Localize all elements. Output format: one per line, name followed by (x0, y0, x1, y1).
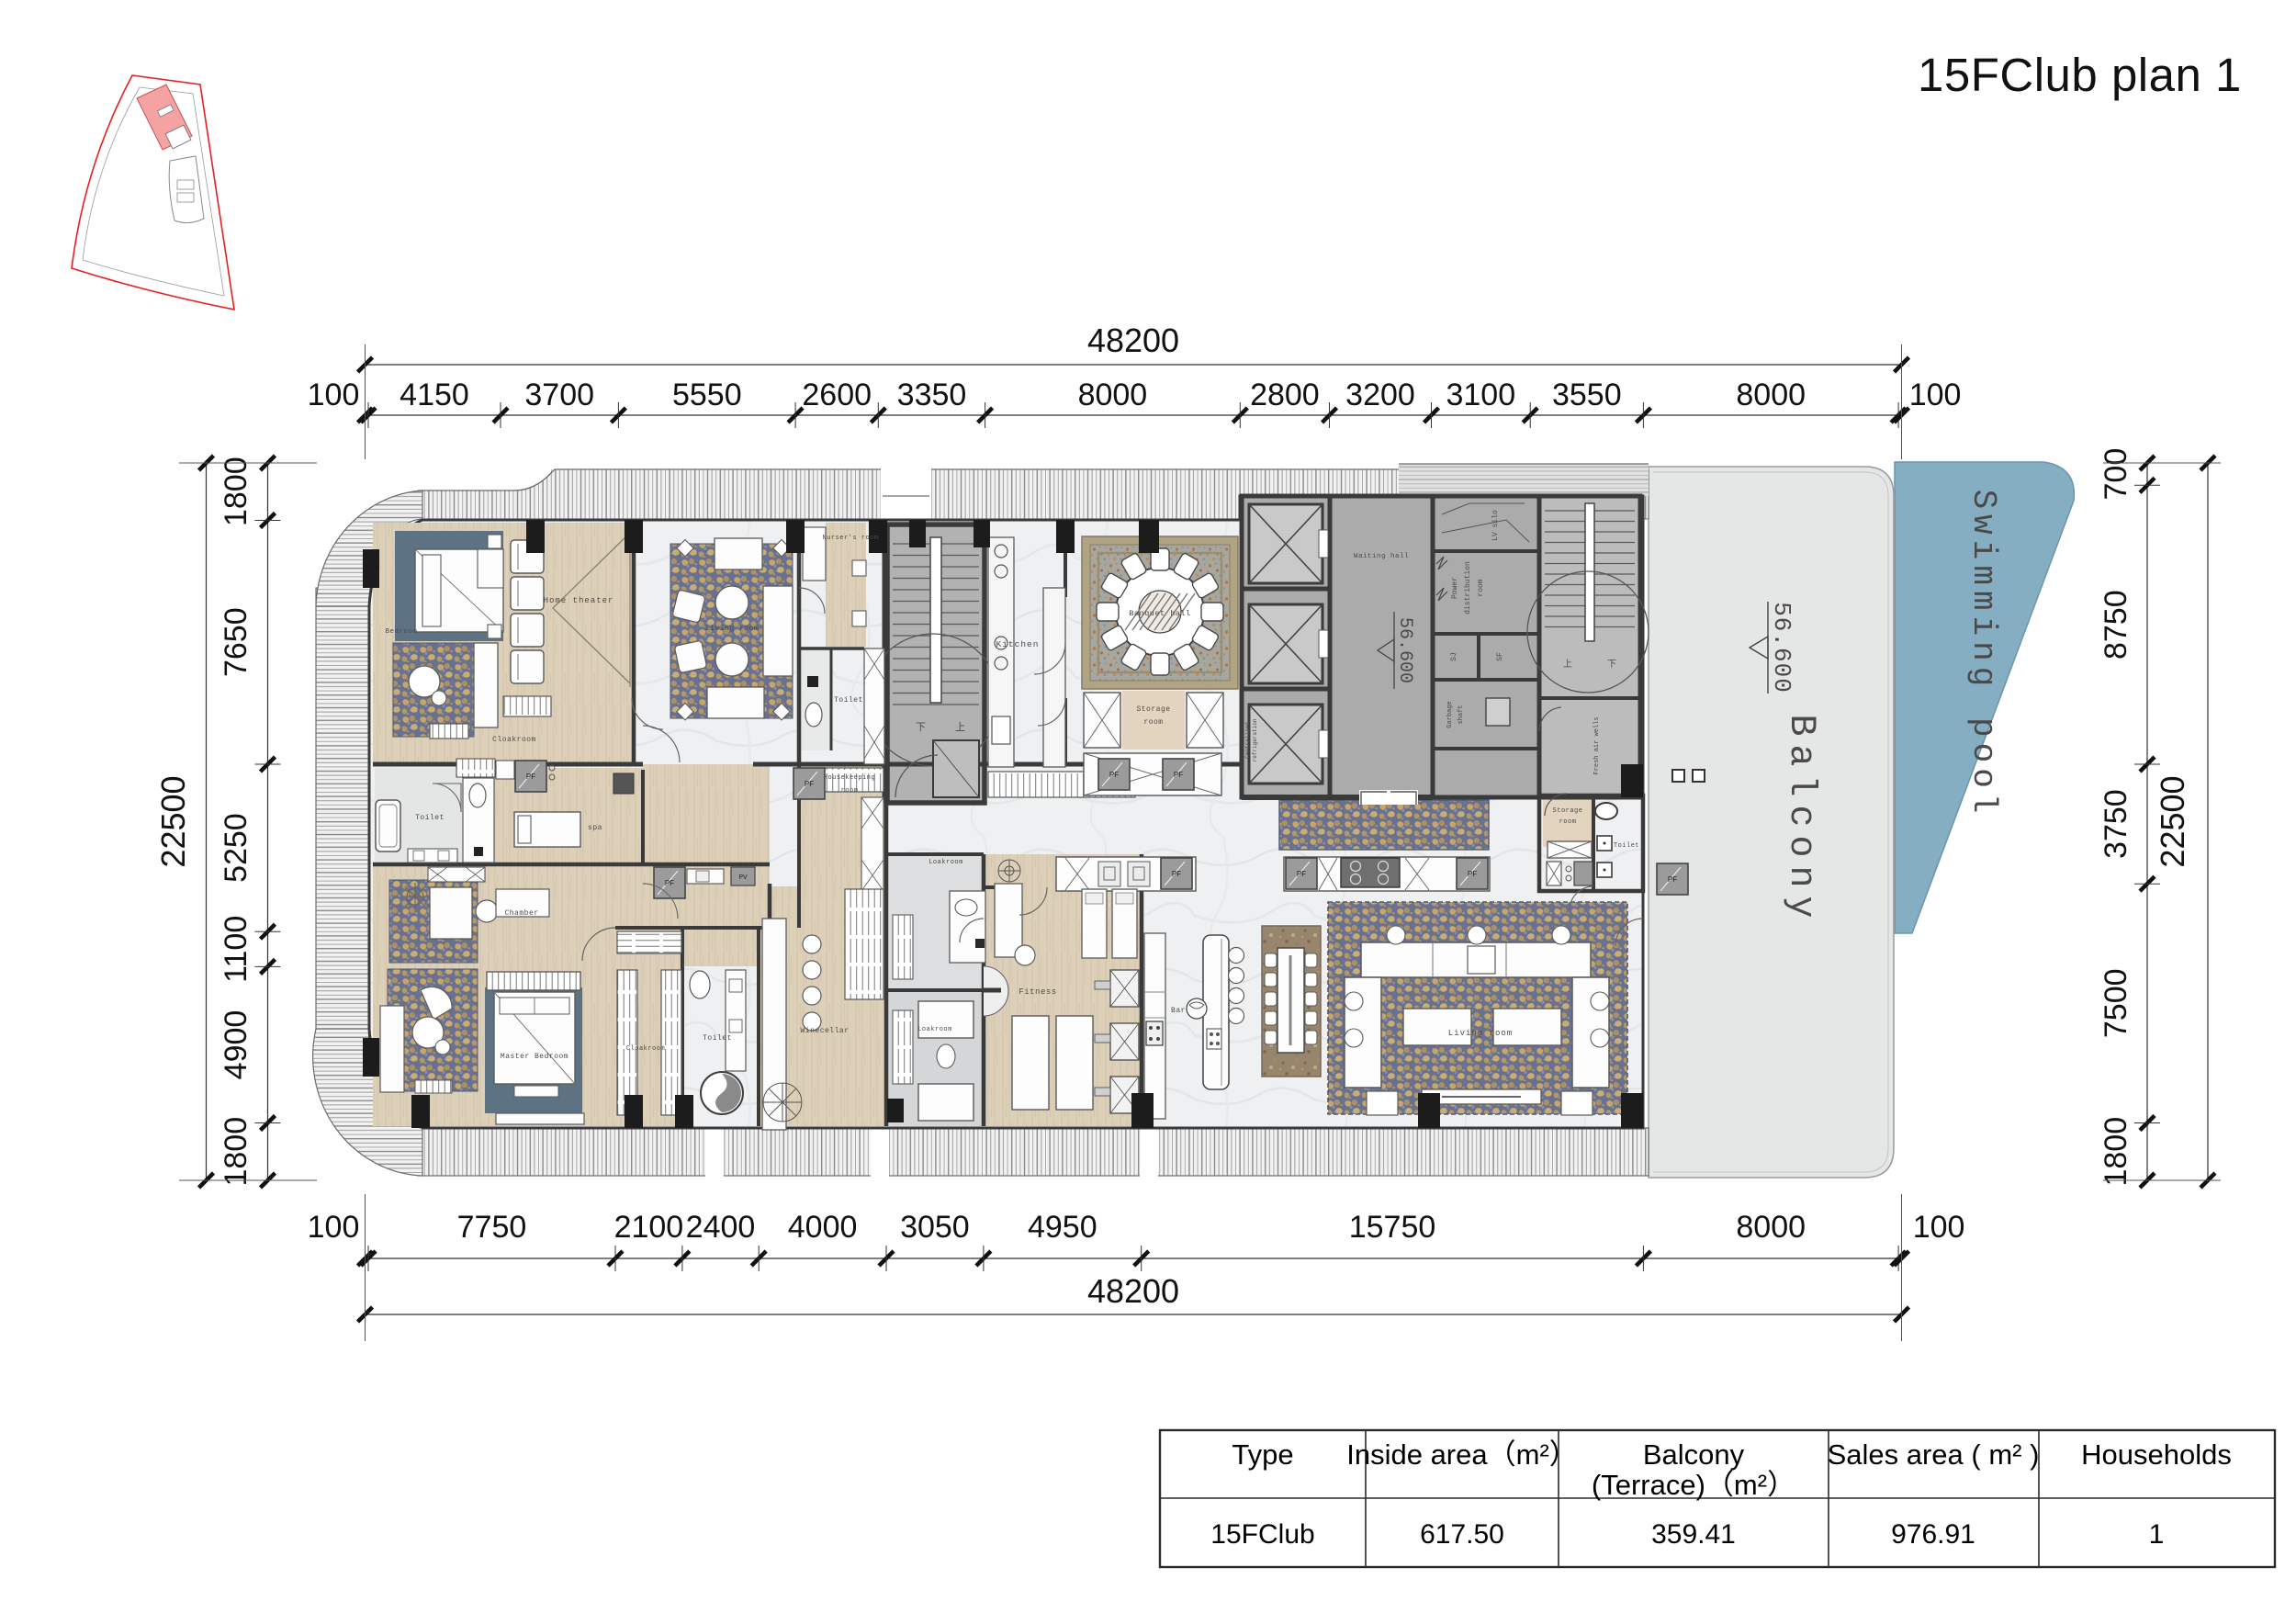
svg-text:Toilet: Toilet (415, 814, 445, 822)
svg-text:8000: 8000 (1078, 378, 1148, 412)
svg-text:(Terrace)（m²）: (Terrace)（m²） (1592, 1469, 1795, 1501)
svg-text:4000: 4000 (788, 1210, 858, 1245)
svg-text:下: 下 (916, 722, 926, 734)
svg-text:Power: Power (1451, 577, 1459, 599)
svg-text:976.91: 976.91 (1891, 1519, 1975, 1550)
svg-text:4150: 4150 (400, 378, 469, 412)
svg-text:5550: 5550 (672, 378, 742, 412)
svg-text:room: room (1143, 718, 1163, 727)
svg-text:Banquet hall: Banquet hall (1129, 609, 1190, 618)
svg-text:refrigeration: refrigeration (1252, 718, 1258, 761)
svg-text:Master Bedroom: Master Bedroom (501, 1053, 568, 1061)
svg-text:8000: 8000 (1736, 1210, 1806, 1245)
svg-text:PV: PV (738, 874, 748, 881)
svg-text:room: room (1477, 579, 1485, 596)
svg-text:48200: 48200 (1087, 321, 1179, 359)
svg-text:100: 100 (308, 1210, 360, 1245)
svg-text:617.50: 617.50 (1420, 1519, 1504, 1550)
svg-text:100: 100 (1909, 378, 1962, 412)
svg-text:3100: 3100 (1446, 378, 1515, 412)
svg-text:Cloakroom: Cloakroom (626, 1045, 665, 1053)
svg-text:3550: 3550 (1552, 378, 1622, 412)
svg-text:Storage: Storage (1136, 705, 1170, 714)
svg-text:Loakroom: Loakroom (929, 859, 963, 866)
svg-text:15FClub plan 1: 15FClub plan 1 (1918, 49, 2242, 101)
svg-text:359.41: 359.41 (1651, 1519, 1736, 1550)
svg-text:Toilet: Toilet (1614, 842, 1639, 850)
svg-text:100: 100 (308, 378, 360, 412)
svg-text:Balcony: Balcony (1780, 714, 1821, 926)
svg-text:2600: 2600 (802, 378, 872, 412)
svg-text:Garbage: Garbage (1446, 701, 1454, 727)
svg-text:7650: 7650 (219, 607, 253, 677)
svg-text:Nurser's room: Nurser's room (822, 535, 878, 542)
svg-text:4900: 4900 (219, 1010, 253, 1080)
svg-text:Winecellar: Winecellar (800, 1027, 849, 1035)
svg-text:Loakroom: Loakroom (917, 1026, 952, 1033)
svg-text:Centralized: Centralized (1244, 722, 1251, 759)
svg-text:Sales area ( m² ): Sales area ( m² ) (1828, 1438, 2040, 1471)
svg-text:5250: 5250 (219, 813, 253, 883)
svg-text:Home theater: Home theater (544, 596, 614, 605)
svg-text:Chamber: Chamber (504, 909, 538, 918)
svg-text:shaft: shaft (1458, 705, 1465, 724)
svg-text:2800: 2800 (1250, 378, 1320, 412)
svg-text:3700: 3700 (524, 378, 594, 412)
svg-text:Bar: Bar (1171, 1007, 1186, 1015)
svg-text:Living room: Living room (705, 625, 759, 633)
svg-text:Toilet: Toilet (834, 696, 863, 705)
svg-text:1800: 1800 (2099, 1117, 2133, 1187)
svg-text:Toilet: Toilet (703, 1034, 732, 1043)
svg-text:56.600: 56.600 (1394, 617, 1415, 683)
svg-text:100: 100 (1913, 1210, 1965, 1245)
svg-text:8000: 8000 (1736, 378, 1806, 412)
svg-text:2100: 2100 (614, 1210, 684, 1245)
svg-text:Balcony: Balcony (1643, 1438, 1745, 1471)
svg-text:SF: SF (1496, 652, 1504, 661)
svg-text:上: 上 (955, 721, 965, 734)
svg-text:4950: 4950 (1028, 1210, 1097, 1245)
svg-text:Living room: Living room (1448, 1029, 1513, 1038)
svg-text:Type: Type (1232, 1438, 1293, 1471)
svg-text:56.600: 56.600 (1768, 602, 1795, 694)
svg-text:Fresh air wells: Fresh air wells (1593, 716, 1601, 774)
svg-text:2400: 2400 (686, 1210, 756, 1245)
svg-text:7500: 7500 (2099, 968, 2133, 1038)
svg-text:room: room (1559, 818, 1577, 826)
svg-text:Kitchen: Kitchen (996, 639, 1040, 649)
svg-text:1: 1 (2149, 1519, 2165, 1550)
svg-text:22500: 22500 (2154, 775, 2191, 867)
svg-text:3350: 3350 (897, 378, 967, 412)
svg-text:15750: 15750 (1349, 1210, 1436, 1245)
svg-text:22500: 22500 (154, 775, 192, 867)
svg-text:distribution: distribution (1464, 561, 1472, 615)
svg-text:SJ: SJ (1450, 652, 1458, 661)
svg-text:Households: Households (2081, 1438, 2232, 1471)
svg-text:700: 700 (2099, 448, 2133, 501)
svg-text:spa: spa (588, 824, 602, 832)
svg-text:48200: 48200 (1087, 1272, 1179, 1310)
svg-text:3200: 3200 (1345, 378, 1415, 412)
svg-text:LV silo: LV silo (1491, 510, 1500, 541)
svg-text:Cloakroom: Cloakroom (492, 736, 536, 744)
svg-text:Fitness: Fitness (1019, 987, 1056, 997)
svg-text:1800: 1800 (219, 457, 253, 526)
svg-text:1800: 1800 (219, 1117, 253, 1187)
svg-text:Swimming pool: Swimming pool (1964, 490, 2002, 819)
svg-text:Waiting hall: Waiting hall (1354, 553, 1409, 560)
svg-text:Storage: Storage (1553, 807, 1583, 815)
svg-text:下: 下 (1607, 660, 1616, 671)
svg-text:15FClub: 15FClub (1210, 1519, 1314, 1550)
svg-text:Bedroom: Bedroom (385, 628, 417, 636)
svg-text:上: 上 (1563, 659, 1572, 671)
svg-text:room: room (841, 787, 859, 795)
svg-text:Inside area（m²）: Inside area（m²） (1346, 1438, 1578, 1471)
svg-text:Housekeeping: Housekeeping (824, 774, 875, 782)
svg-text:7750: 7750 (457, 1210, 527, 1245)
svg-text:3750: 3750 (2099, 789, 2133, 859)
svg-text:8750: 8750 (2099, 590, 2133, 660)
svg-text:3050: 3050 (900, 1210, 970, 1245)
svg-text:1100: 1100 (219, 916, 253, 983)
